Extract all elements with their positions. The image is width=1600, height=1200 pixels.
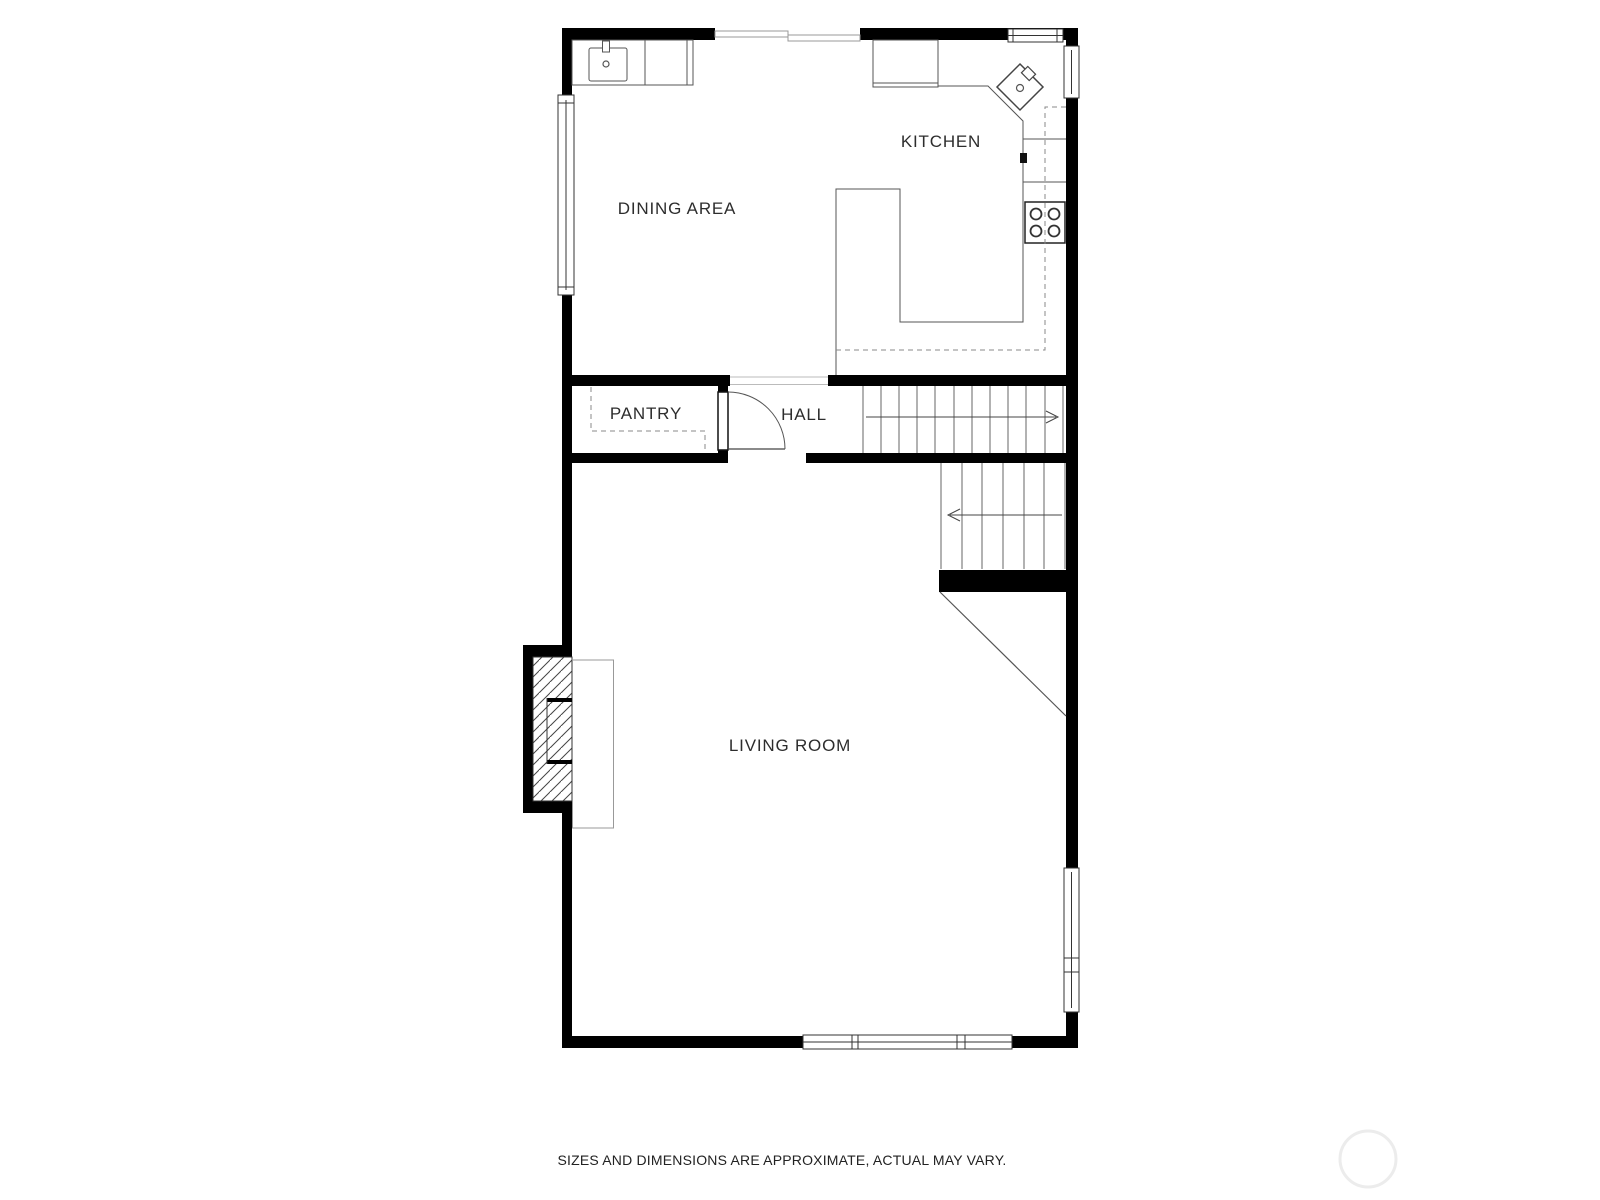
stair-overhead-diagonal <box>940 592 1066 716</box>
cased-opening-hall <box>730 376 828 385</box>
watermark-circle <box>1340 1131 1396 1187</box>
opening-top-wall-right <box>788 35 860 41</box>
room-label-dining-area: DINING AREA <box>618 199 736 218</box>
wall-under-stairs <box>806 453 1073 463</box>
window-left-wall <box>558 95 574 295</box>
wall-pantry-top <box>562 375 730 386</box>
disclaimer-text: SIZES AND DIMENSIONS ARE APPROXIMATE, AC… <box>557 1152 1006 1168</box>
fireplace-surround-left <box>523 645 533 813</box>
fireplace-surround-top <box>523 645 572 657</box>
stairs-down-arrow <box>948 509 1062 521</box>
floor-plan-page: KITCHEN DINING AREA PANTRY HALL LIVING R… <box>0 0 1600 1200</box>
door-jamb <box>718 392 728 450</box>
counter-peninsula-edge <box>836 86 1023 375</box>
fireplace <box>523 645 614 828</box>
windows <box>558 29 1079 1049</box>
room-label-pantry: PANTRY <box>610 404 682 423</box>
stairs-upper-flight <box>863 386 1063 453</box>
window-top-right <box>1008 29 1063 42</box>
door-jamb-stub-top <box>718 375 728 392</box>
door-swing-arc <box>728 392 785 449</box>
room-label-living-room: LIVING ROOM <box>729 736 851 755</box>
window-bottom-wall <box>803 1035 1012 1049</box>
room-label-kitchen: KITCHEN <box>901 132 981 151</box>
window-right-upper <box>1064 46 1079 98</box>
floor-plan-drawing: KITCHEN DINING AREA PANTRY HALL LIVING R… <box>0 0 1600 1200</box>
wall-hall-top <box>828 375 1078 386</box>
swing-door <box>718 392 785 450</box>
fireplace-masonry-hatch <box>533 657 572 801</box>
exterior-walls <box>562 28 1078 1048</box>
fireplace-hearth <box>573 660 614 828</box>
wall-stair-landing <box>939 570 1073 592</box>
stairs-lower-flight <box>941 463 1065 569</box>
stairs-up-arrow <box>866 411 1058 423</box>
fireplace-surround-bottom <box>523 801 572 813</box>
opening-top-wall-left <box>715 31 788 37</box>
door-jamb-stub-bottom <box>718 450 728 463</box>
corner-sink-icon <box>997 64 1043 110</box>
refrigerator-cabinet <box>873 40 938 87</box>
wall-top-left <box>562 28 715 40</box>
room-label-hall: HALL <box>781 405 827 424</box>
appliance-handle <box>1020 153 1027 163</box>
window-right-lower <box>1064 868 1079 1012</box>
wall-pantry-bottom <box>562 453 728 463</box>
